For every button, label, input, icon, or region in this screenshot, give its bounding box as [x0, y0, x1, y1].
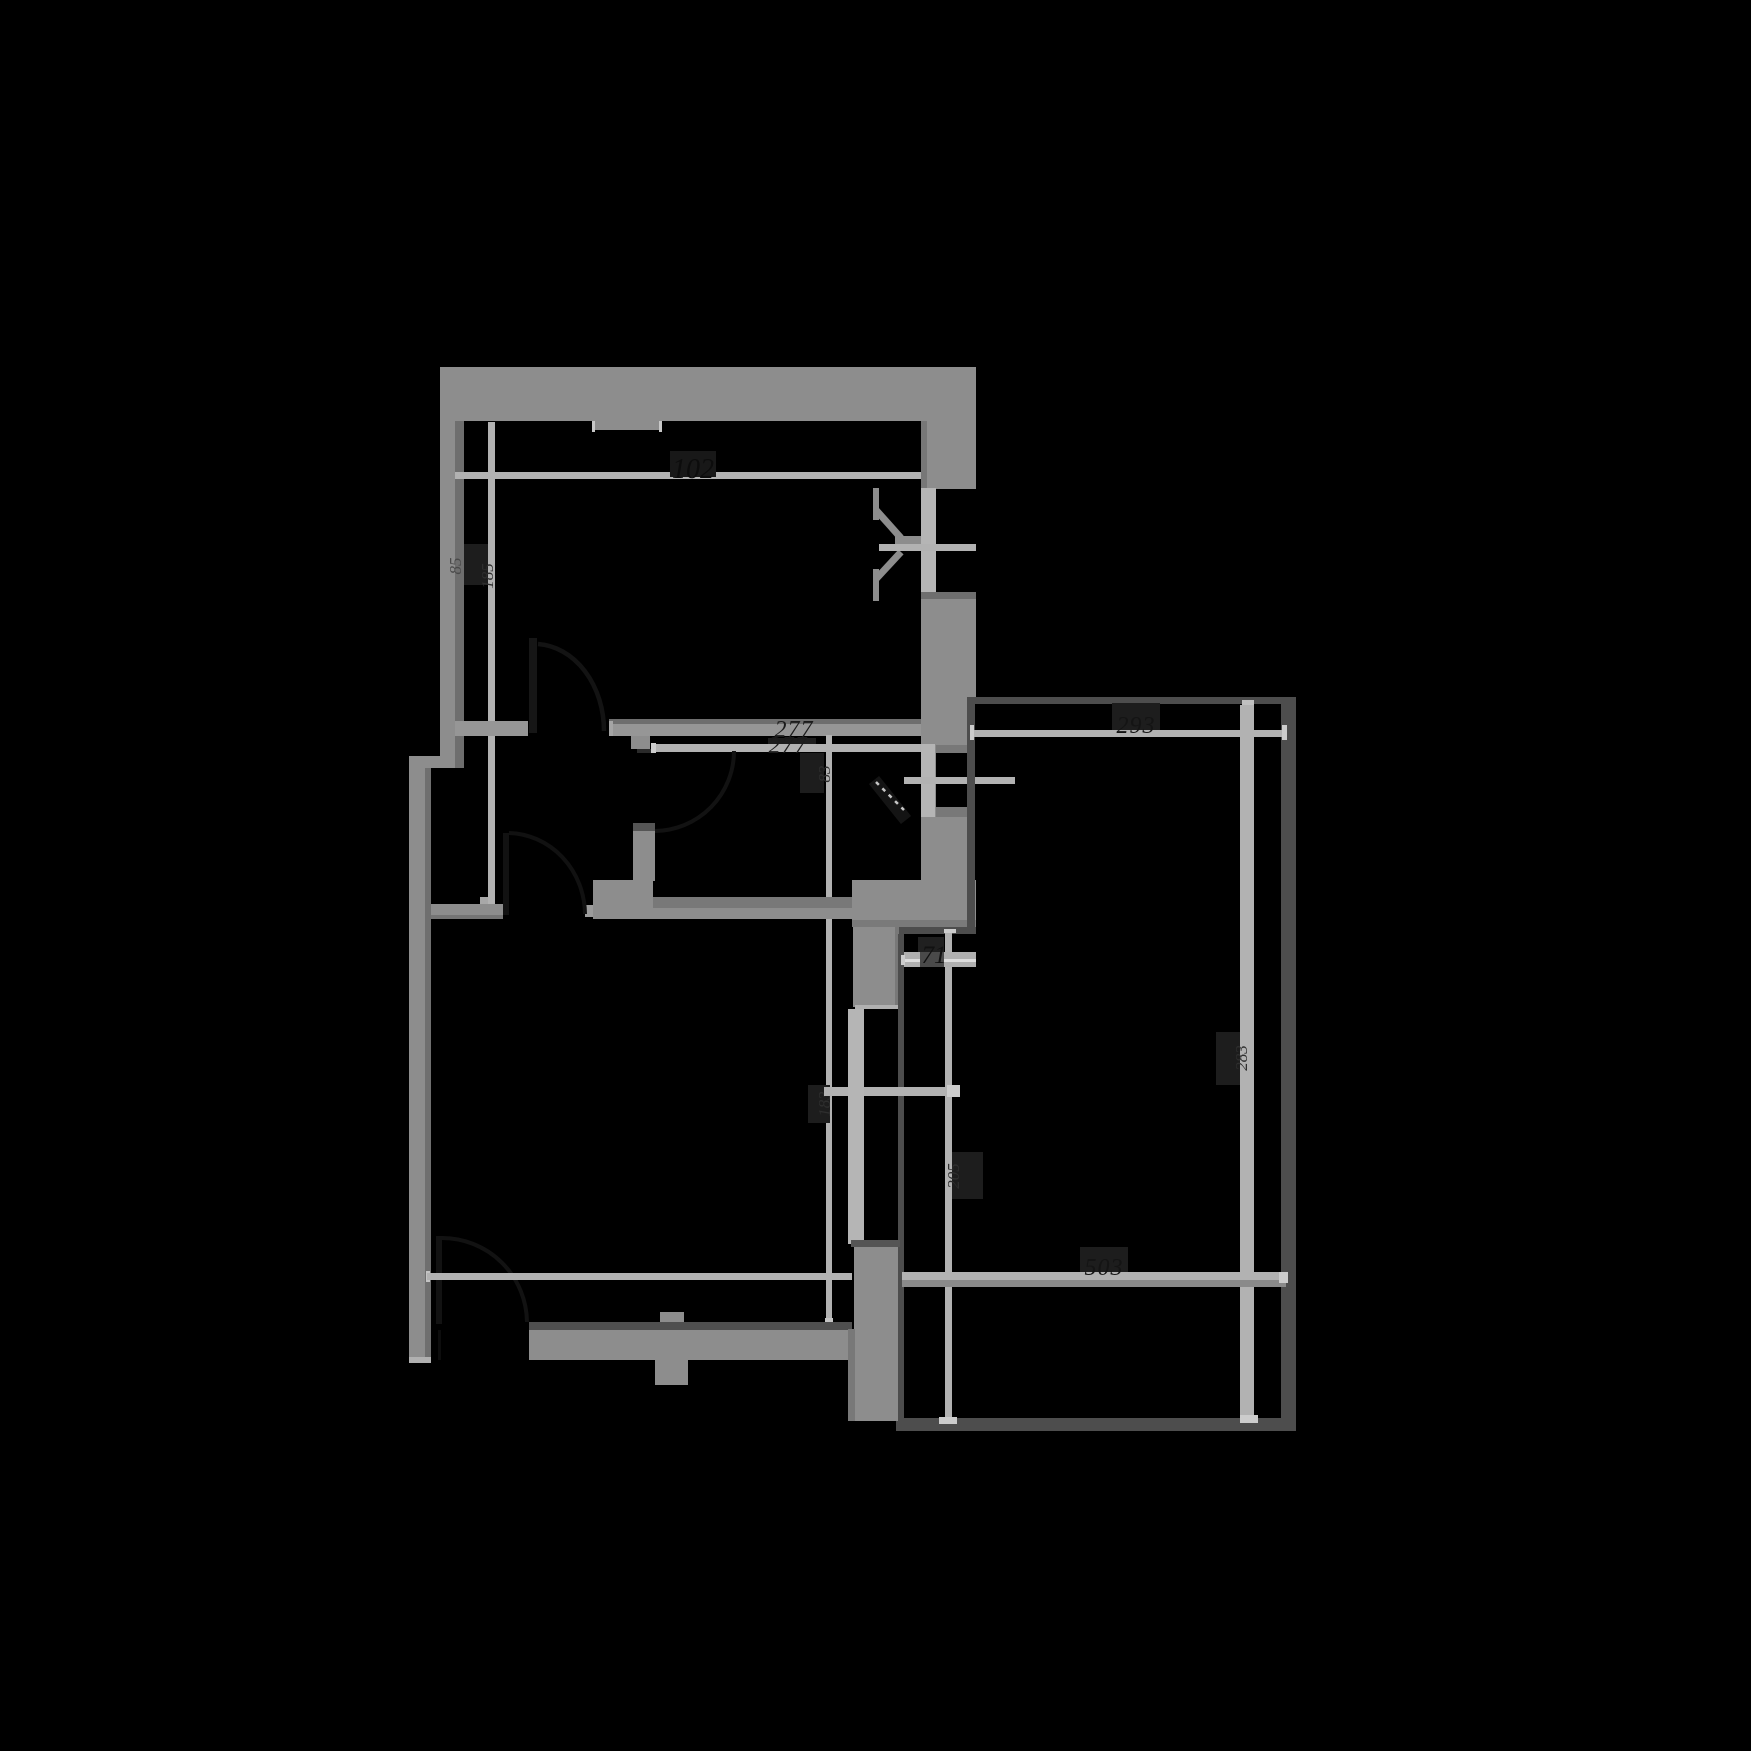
- svg-text:283: 283: [1232, 1045, 1251, 1071]
- svg-text:83: 83: [815, 766, 834, 783]
- svg-text:71: 71: [922, 942, 947, 969]
- svg-text:503: 503: [1085, 1255, 1124, 1281]
- svg-text:185: 185: [478, 563, 497, 589]
- svg-text:293: 293: [1117, 713, 1156, 739]
- svg-text:85: 85: [446, 558, 465, 575]
- svg-text:205: 205: [944, 1163, 963, 1189]
- svg-text:102: 102: [672, 454, 714, 485]
